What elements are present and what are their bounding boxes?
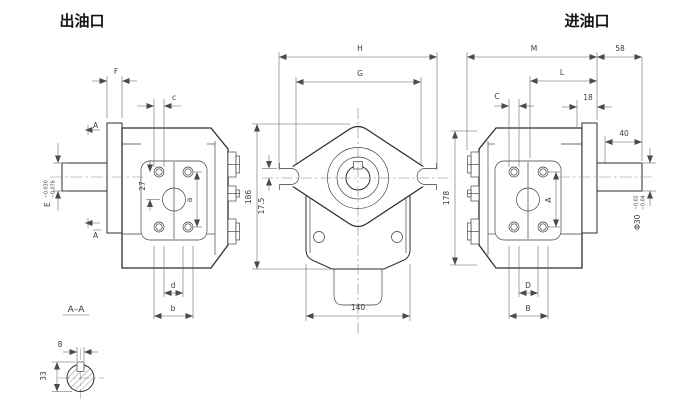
dim-label-18: 18 [583, 93, 593, 102]
section-marker-bottom-label: A [93, 231, 99, 240]
outlet-port-label: 出油口 [59, 12, 104, 30]
port-block-left [228, 152, 240, 244]
dim-label-H: H [357, 44, 363, 53]
dim-label-b: b [171, 304, 176, 313]
flange-slot-right [417, 163, 445, 190]
dim-label-d: d [171, 281, 176, 290]
dim-F: F [92, 67, 137, 118]
dim-label-dia30: Φ30 [633, 214, 642, 230]
flange-slot-left [271, 163, 299, 190]
dim-label-F: F [114, 67, 118, 76]
inlet-port-label: 进油口 [564, 12, 609, 30]
dim-label-A: A [544, 197, 553, 203]
front-view: H G 186 17.5 140 [244, 44, 452, 336]
gear-pump-dimension-drawing: 出油口 进油口 F [0, 0, 700, 400]
section-marker-bottom: A [85, 218, 101, 240]
mount-ear-hole-left [314, 232, 325, 243]
dim-40: 40 [605, 129, 642, 164]
dim-label-c: c [172, 93, 176, 102]
dim-label-B: B [525, 304, 530, 313]
port-block-right [468, 152, 480, 244]
dim-label-E-tol-upper: −0.030 [44, 180, 50, 198]
right-side-view: M 58 L 18 C [442, 44, 656, 319]
dim-label-L: L [560, 68, 565, 77]
section-title: A–A [68, 305, 86, 315]
dim-18: 18 [562, 93, 612, 127]
dim-label-33: 33 [39, 371, 48, 381]
dim-label-40: 40 [619, 129, 629, 138]
mount-ear-hole-right [392, 232, 403, 243]
section-view-aa: A–A 8 33 [39, 305, 104, 399]
section-marker-top: A [85, 121, 100, 135]
dim-label-E-tol-lower: −0.076 [51, 180, 57, 198]
left-side-view: F c E −0.030 −0.076 27 [43, 67, 240, 319]
dim-label-M: M [531, 44, 537, 53]
drawing-svg: 出油口 进油口 F [0, 0, 700, 400]
dim-label-E: E [43, 202, 52, 207]
dim-8: 8 [58, 340, 98, 361]
mounting-flange-right [582, 123, 597, 233]
dim-label-8: 8 [58, 340, 63, 349]
dim-label-dia30-tol-upper: −0.02 [634, 195, 640, 210]
dim-label-dia30-tol-lower: −0.04 [641, 195, 647, 210]
dim-label-58: 58 [615, 44, 625, 53]
dim-label-G: G [357, 69, 363, 78]
dim-label-140: 140 [351, 303, 366, 312]
dim-label-186: 186 [244, 190, 253, 205]
section-marker-top-label: A [93, 121, 99, 130]
dim-label-178: 178 [442, 191, 451, 206]
dim-label-17-5: 17.5 [257, 197, 266, 214]
dim-label-C: C [494, 92, 499, 101]
dim-label-27: 27 [138, 181, 147, 191]
dim-label-D: D [525, 281, 531, 290]
mounting-flange-left [107, 123, 122, 233]
keyway-section [77, 362, 84, 372]
dim-58: 58 [597, 44, 642, 161]
dim-label-a: a [185, 198, 194, 203]
